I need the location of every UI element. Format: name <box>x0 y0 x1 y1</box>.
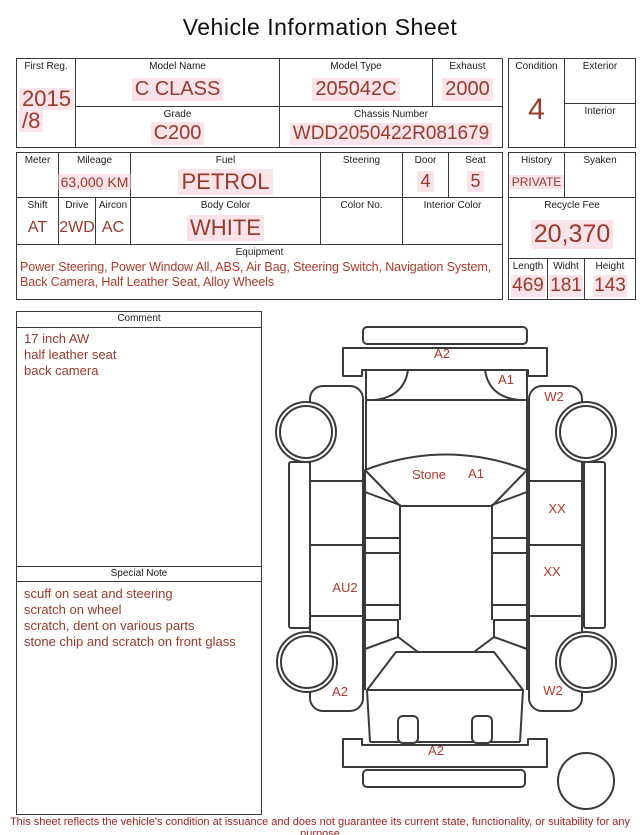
first-reg-label: First Reg. <box>17 59 75 72</box>
field-shift: Shift AT <box>17 197 59 244</box>
field-condition: Condition 4 <box>509 59 565 147</box>
special-note-line: scuff on seat and steering <box>24 586 256 602</box>
height-label: Height <box>585 259 635 272</box>
height-value: 143 <box>593 275 627 297</box>
exterior-label: Exterior <box>565 59 635 72</box>
drive-value: 2WD <box>59 219 95 237</box>
field-fuel: Fuel PETROL <box>131 153 321 197</box>
widht-value: 181 <box>549 275 583 297</box>
drive-label: Drive <box>59 198 95 211</box>
front-right-wheel <box>556 402 616 462</box>
table-condition: Condition 4 Exterior Interior <box>508 58 636 148</box>
seat-value: 5 <box>467 171 483 192</box>
special-note-header: Special Note <box>17 566 261 582</box>
rear-bumper <box>343 739 547 767</box>
body-color-value: WHITE <box>187 215 264 241</box>
damage-label: A1 <box>498 372 514 387</box>
field-exterior: Exterior <box>565 59 635 104</box>
field-length: Length 469 <box>509 259 548 299</box>
special-note-line: stone chip and scratch on front glass <box>24 634 256 650</box>
field-recycle-fee: Recycle Fee 20,370 <box>509 197 635 259</box>
field-model-name: Model Name C CLASS <box>76 59 280 106</box>
aircon-label: Aircon <box>96 198 130 211</box>
steering-label: Steering <box>321 153 402 166</box>
model-type-label: Model Type <box>280 59 432 72</box>
model-name-value: C CLASS <box>132 78 224 101</box>
rear-window <box>367 652 523 690</box>
shift-value: AT <box>28 219 47 237</box>
field-door: Door 4 <box>403 153 449 197</box>
field-body-color: Body Color WHITE <box>131 197 321 244</box>
windshield <box>365 455 527 507</box>
field-syaken: Syaken <box>565 153 635 197</box>
damage-label: XX <box>543 564 561 579</box>
field-aircon: Aircon AC <box>96 197 131 244</box>
field-widht: Widht 181 <box>548 259 585 299</box>
history-label: History <box>509 153 564 166</box>
field-first-reg: First Reg. 2015 /8 <box>17 59 76 147</box>
disclaimer-text: This sheet reflects the vehicle's condit… <box>0 816 640 835</box>
comment-line: half leather seat <box>24 347 256 363</box>
damage-label: A2 <box>428 743 444 758</box>
field-meter: Meter <box>17 153 59 197</box>
damage-label: Stone <box>412 467 446 482</box>
right-rear-door-frame <box>492 553 527 605</box>
damage-label: A2 <box>434 346 450 361</box>
roof-edges <box>398 506 494 652</box>
field-equipment: Equipment Power Steering, Power Window A… <box>17 244 502 299</box>
page-title: Vehicle Information Sheet <box>0 14 640 41</box>
field-exhaust: Exhaust 2000 <box>433 59 502 106</box>
left-rear-door-frame <box>365 553 400 605</box>
left-taillight <box>398 716 418 743</box>
field-color-no: Color No. <box>321 197 403 244</box>
grade-label: Grade <box>76 107 279 120</box>
rear-right-wheel <box>556 632 616 692</box>
rear-lower-strip <box>363 770 525 787</box>
comment-header: Comment <box>17 312 261 328</box>
table-history-fee-size: History PRIVATE Syaken Recycle Fee 20,37… <box>508 152 636 300</box>
comment-line: back camera <box>24 363 256 379</box>
field-interior-color: Interior Color <box>403 197 502 244</box>
grade-value: C200 <box>151 122 205 145</box>
table-main-bottom: Meter Mileage 63,000 KM Fuel PETROL Stee… <box>16 152 503 300</box>
table-main-top: First Reg. 2015 /8 Model Name C CLASS Mo… <box>16 58 503 148</box>
comment-label: Comment <box>17 312 261 324</box>
widht-label: Widht <box>548 259 584 272</box>
comment-box: Comment 17 inch AW half leather seat bac… <box>16 311 262 815</box>
length-label: Length <box>509 259 547 272</box>
door-value: 4 <box>417 171 433 192</box>
special-note-label: Special Note <box>17 567 261 579</box>
comment-text: 17 inch AW half leather seat back camera <box>24 331 256 379</box>
damage-label: W2 <box>544 389 564 404</box>
field-height: Height 143 <box>585 259 635 299</box>
shift-label: Shift <box>17 198 58 211</box>
first-reg-year: 2015 <box>19 88 74 110</box>
trunk-outline <box>367 690 523 742</box>
left-rocker-panel <box>289 462 310 628</box>
car-diagram: A2 A1 W2 Stone A1 XX XX AU2 A2 W2 A2 <box>270 310 640 820</box>
interior-color-label: Interior Color <box>403 198 502 211</box>
field-drive: Drive 2WD <box>59 197 96 244</box>
aircon-value: AC <box>102 219 124 237</box>
syaken-label: Syaken <box>565 153 635 166</box>
spare-wheel <box>558 753 614 809</box>
color-no-label: Color No. <box>321 198 402 211</box>
damage-label: AU2 <box>332 580 357 595</box>
field-steering: Steering <box>321 153 403 197</box>
recycle-fee-label: Recycle Fee <box>509 198 635 211</box>
condition-label: Condition <box>509 59 564 72</box>
door-label: Door <box>403 153 448 166</box>
field-history: History PRIVATE <box>509 153 565 197</box>
chassis-number-label: Chassis Number <box>280 107 502 120</box>
field-mileage: Mileage 63,000 KM <box>59 153 131 197</box>
fuel-label: Fuel <box>131 153 320 166</box>
fuel-value: PETROL <box>178 169 272 195</box>
meter-label: Meter <box>17 153 58 166</box>
exhaust-value: 2000 <box>442 78 493 101</box>
special-note-line: scratch on wheel <box>24 602 256 618</box>
first-reg-month: /8 <box>19 110 43 132</box>
front-upper-strip <box>363 327 527 344</box>
recycle-fee-value: 20,370 <box>531 220 613 249</box>
body-color-label: Body Color <box>131 198 320 211</box>
front-left-wheel <box>276 402 336 462</box>
field-grade: Grade C200 <box>76 106 280 147</box>
damage-label: A2 <box>332 684 348 699</box>
rear-left-wheel <box>277 632 337 692</box>
field-interior: Interior <box>565 104 635 147</box>
right-rocker-panel <box>584 462 605 628</box>
field-model-type: Model Type 205042C <box>280 59 433 106</box>
equipment-label: Equipment <box>17 245 502 258</box>
special-note-line: scratch, dent on various parts <box>24 618 256 634</box>
field-chassis-number: Chassis Number WDD2050422R081679 <box>280 106 502 147</box>
exhaust-label: Exhaust <box>433 59 502 72</box>
length-value: 469 <box>511 275 545 297</box>
right-taillight <box>472 716 492 743</box>
history-value: PRIVATE <box>509 175 565 189</box>
damage-label: A1 <box>468 466 484 481</box>
vehicle-information-sheet: Vehicle Information Sheet First Reg. 201… <box>0 0 640 835</box>
seat-label: Seat <box>449 153 502 166</box>
mileage-label: Mileage <box>59 153 130 166</box>
mileage-value: 63,000 KM <box>58 174 132 190</box>
damage-label: XX <box>548 501 566 516</box>
special-note-text: scuff on seat and steering scratch on wh… <box>24 586 256 649</box>
equipment-value: Power Steering, Power Window All, ABS, A… <box>17 258 502 290</box>
field-seat: Seat 5 <box>449 153 502 197</box>
condition-value: 4 <box>528 93 545 127</box>
chassis-number-value: WDD2050422R081679 <box>290 123 492 145</box>
damage-label: W2 <box>543 683 563 698</box>
rear-pillar-frames <box>365 620 527 649</box>
model-name-label: Model Name <box>76 59 279 72</box>
interior-label: Interior <box>565 104 635 117</box>
comment-line: 17 inch AW <box>24 331 256 347</box>
model-type-value: 205042C <box>312 78 399 101</box>
